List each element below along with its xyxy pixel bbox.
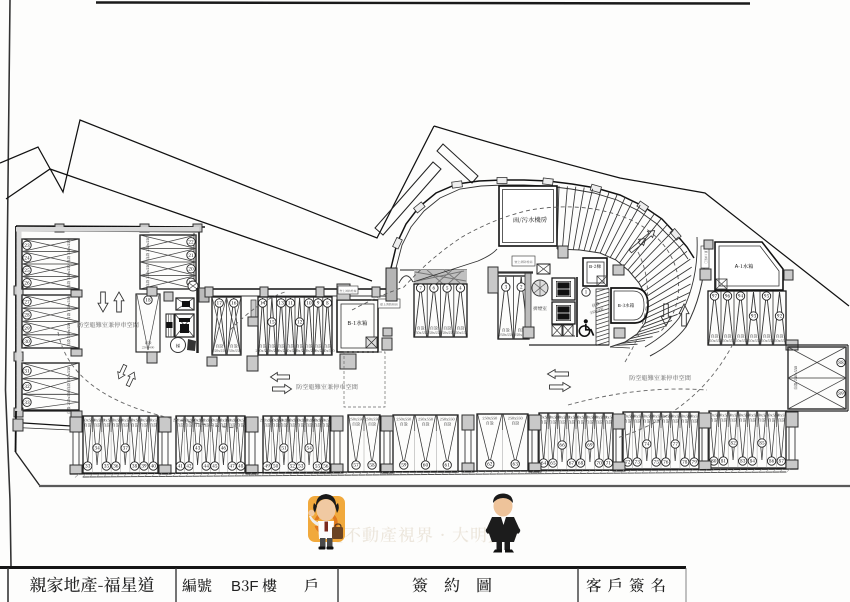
svg-text:94: 94 <box>738 293 744 300</box>
svg-text:48: 48 <box>238 463 244 470</box>
svg-text:60: 60 <box>423 462 429 469</box>
svg-text:自設: 自設 <box>352 422 360 428</box>
svg-text:250x550: 250x550 <box>212 349 226 354</box>
svg-text:自設 250x550: 自設 250x550 <box>793 366 799 390</box>
svg-text:B-1水箱: B-1水箱 <box>347 319 367 327</box>
svg-text:41: 41 <box>178 463 184 470</box>
svg-text:79: 79 <box>692 459 698 466</box>
svg-text:66: 66 <box>559 442 565 449</box>
svg-text:梯: 梯 <box>176 344 181 350</box>
svg-text:戶: 戶 <box>304 575 319 596</box>
svg-text:21: 21 <box>188 252 194 259</box>
svg-text:15: 15 <box>269 319 275 326</box>
svg-text:50: 50 <box>273 463 279 470</box>
svg-text:51: 51 <box>281 445 287 452</box>
svg-text:76: 76 <box>663 459 669 466</box>
svg-text:42: 42 <box>186 463 192 470</box>
svg-text:31: 31 <box>24 368 30 375</box>
svg-text:A-1水箱: A-1水箱 <box>735 263 754 270</box>
svg-text:自設 250x550: 自設 250x550 <box>66 323 72 347</box>
svg-text:客戶簽名: 客戶簽名 <box>586 574 672 596</box>
svg-text:85: 85 <box>759 440 765 447</box>
svg-text:自設 250x550: 自設 250x550 <box>66 367 72 391</box>
svg-text:自設: 自設 <box>322 423 330 429</box>
svg-text:13: 13 <box>278 300 284 307</box>
svg-text:83: 83 <box>740 458 746 465</box>
svg-text:39: 39 <box>141 463 147 470</box>
svg-text:81: 81 <box>721 458 727 465</box>
svg-text:77: 77 <box>673 441 679 448</box>
svg-text:250x550: 250x550 <box>499 333 513 338</box>
svg-text:自設: 自設 <box>149 423 157 429</box>
svg-text:17: 17 <box>217 300 223 307</box>
svg-text:9: 9 <box>317 300 320 307</box>
svg-text:38: 38 <box>132 463 138 470</box>
svg-text:B-2梯: B-2梯 <box>589 264 601 270</box>
svg-text:12: 12 <box>297 319 303 326</box>
svg-text:10: 10 <box>306 300 312 307</box>
svg-text:22: 22 <box>188 238 194 245</box>
svg-text:27: 27 <box>24 298 30 305</box>
svg-text:55: 55 <box>315 463 321 470</box>
svg-text:2: 2 <box>520 284 523 291</box>
svg-text:B-3水箱: B-3水箱 <box>618 303 635 309</box>
svg-text:自設: 自設 <box>777 418 785 424</box>
svg-text:7: 7 <box>419 285 422 292</box>
svg-text:11: 11 <box>288 300 294 307</box>
svg-text:63: 63 <box>513 461 519 468</box>
svg-text:8: 8 <box>326 300 329 307</box>
svg-text:25: 25 <box>24 267 30 274</box>
svg-text:86: 86 <box>769 458 775 465</box>
svg-text:29: 29 <box>24 325 30 332</box>
svg-text:70: 70 <box>596 460 602 467</box>
svg-text:33: 33 <box>85 463 91 470</box>
svg-text:250x550: 250x550 <box>772 339 786 344</box>
svg-text:B3F: B3F <box>231 575 259 596</box>
svg-text:28: 28 <box>24 312 30 319</box>
svg-text:89: 89 <box>838 390 844 397</box>
svg-text:40: 40 <box>151 463 157 470</box>
svg-text:47: 47 <box>229 463 235 470</box>
svg-text:36: 36 <box>113 463 119 470</box>
svg-text:26: 26 <box>24 279 30 286</box>
svg-text:24: 24 <box>24 254 30 261</box>
svg-text:57: 57 <box>353 462 359 469</box>
svg-text:69: 69 <box>587 442 593 449</box>
svg-text:43: 43 <box>195 445 201 452</box>
svg-text:3: 3 <box>504 284 507 291</box>
svg-text:33: 33 <box>24 399 30 406</box>
svg-text:編號: 編號 <box>182 575 212 596</box>
svg-text:250x550: 250x550 <box>440 331 454 336</box>
svg-text:自設: 自設 <box>511 421 519 427</box>
svg-text:97: 97 <box>712 293 718 300</box>
svg-text:自設 250x550: 自設 250x550 <box>66 296 72 320</box>
svg-text:250x550: 250x550 <box>414 331 428 336</box>
svg-text:64: 64 <box>541 460 547 467</box>
svg-text:自設 250x550: 自設 250x550 <box>66 240 72 264</box>
svg-text:32: 32 <box>24 383 30 390</box>
svg-text:自設 250x550: 自設 250x550 <box>145 264 151 288</box>
svg-text:16: 16 <box>231 300 237 307</box>
svg-text:30: 30 <box>24 338 30 345</box>
svg-text:44: 44 <box>204 463 210 470</box>
svg-text:防空避難室兼停車空間: 防空避難室兼停車空間 <box>77 320 139 329</box>
svg-text:65: 65 <box>550 460 556 467</box>
svg-text:96: 96 <box>725 293 731 300</box>
svg-text:62: 62 <box>487 461 493 468</box>
svg-text:53: 53 <box>298 463 304 470</box>
svg-text:雨/污水機房: 雨/污水機房 <box>513 215 547 224</box>
svg-text:防空避難室兼停車空間: 防空避難室兼停車空間 <box>629 373 691 382</box>
svg-text:250x550: 250x550 <box>320 349 334 354</box>
svg-text:45: 45 <box>212 463 218 470</box>
svg-text:84: 84 <box>750 458 756 465</box>
svg-text:67: 67 <box>569 460 575 467</box>
svg-text:61: 61 <box>445 462 451 469</box>
svg-text:6: 6 <box>433 285 436 292</box>
svg-text:樓: 樓 <box>262 575 277 596</box>
svg-text:72: 72 <box>625 459 631 466</box>
svg-text:68: 68 <box>578 460 584 467</box>
svg-text:37: 37 <box>123 445 129 452</box>
svg-text:56: 56 <box>323 463 329 470</box>
svg-text:250x400: 250x400 <box>142 345 155 350</box>
svg-text:排煙室: 排煙室 <box>533 306 547 312</box>
svg-text:親家地產-福星道: 親家地產-福星道 <box>29 571 154 596</box>
svg-text:58: 58 <box>369 462 375 469</box>
svg-text:自設: 自設 <box>486 421 494 427</box>
svg-text:4: 4 <box>459 285 462 292</box>
svg-text:自設: 自設 <box>690 419 698 425</box>
svg-text:80: 80 <box>711 458 717 465</box>
svg-text:20: 20 <box>188 265 194 272</box>
svg-text:250x550: 250x550 <box>227 349 241 354</box>
svg-text:23: 23 <box>24 242 30 249</box>
svg-text:自設 250x550: 自設 250x550 <box>66 265 72 289</box>
svg-text:自設: 自設 <box>443 422 451 428</box>
svg-text:自設: 自設 <box>604 420 612 426</box>
svg-text:壁上消防栓箱: 壁上消防栓箱 <box>380 303 398 307</box>
svg-text:防空避難室兼停車空間: 防空避難室兼停車空間 <box>296 382 358 391</box>
svg-text:35: 35 <box>104 463 110 470</box>
svg-text:自設 250x550: 自設 250x550 <box>145 237 151 261</box>
svg-text:73: 73 <box>635 459 641 466</box>
svg-text:92: 92 <box>777 313 783 320</box>
svg-text:93: 93 <box>751 313 757 320</box>
svg-text:【不動產視界 · 大明】: 【不動產視界 · 大明】 <box>326 521 506 546</box>
svg-text:49: 49 <box>265 463 271 470</box>
svg-text:54: 54 <box>306 445 312 452</box>
svg-text:250x550: 250x550 <box>427 331 441 336</box>
svg-text:87: 87 <box>779 458 785 465</box>
svg-text:自設 250x550: 自設 250x550 <box>66 390 72 414</box>
svg-text:52: 52 <box>290 463 296 470</box>
svg-text:59: 59 <box>401 462 407 469</box>
svg-text:自設: 自設 <box>422 422 430 428</box>
svg-text:250x550: 250x550 <box>453 331 467 336</box>
svg-text:自設: 自設 <box>368 422 376 428</box>
svg-text:簽約圖: 簽約圖 <box>412 573 508 596</box>
svg-text:18: 18 <box>145 297 151 304</box>
svg-text:34: 34 <box>94 445 100 452</box>
svg-text:5: 5 <box>446 285 449 292</box>
svg-text:頂上排氣口: 頂上排氣口 <box>704 251 708 264</box>
svg-text:95: 95 <box>764 293 770 300</box>
svg-text:壁上消防栓箱: 壁上消防栓箱 <box>514 260 532 264</box>
svg-text:71: 71 <box>606 460 612 467</box>
svg-text:78: 78 <box>682 459 688 466</box>
svg-text:自設: 自設 <box>400 422 408 428</box>
svg-text:82: 82 <box>730 440 736 447</box>
svg-text:壁上消防栓箱: 壁上消防栓箱 <box>340 289 357 293</box>
svg-text:74: 74 <box>644 441 650 448</box>
svg-text:88: 88 <box>838 359 844 366</box>
svg-text:1: 1 <box>585 289 588 296</box>
svg-text:75: 75 <box>654 459 660 466</box>
svg-text:46: 46 <box>221 445 227 452</box>
